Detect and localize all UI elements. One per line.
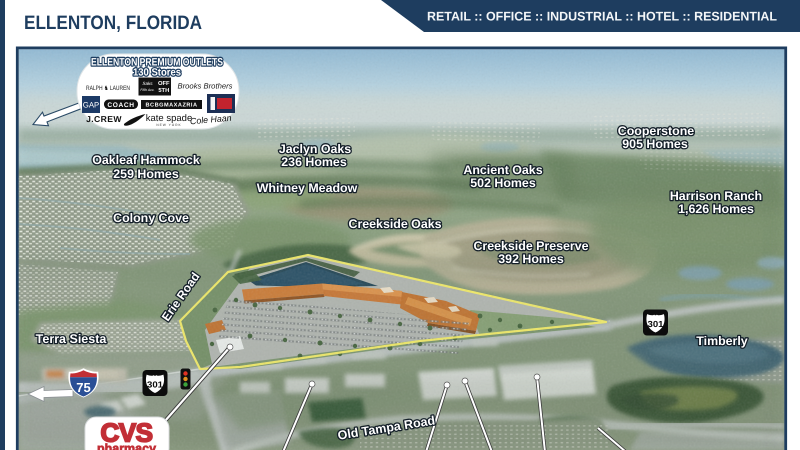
svg-text:236 Homes: 236 Homes — [281, 155, 347, 169]
svg-text:Saks: Saks — [142, 81, 153, 86]
svg-text:5TH: 5TH — [158, 88, 169, 94]
svg-text:GAP: GAP — [83, 101, 99, 110]
svg-text:1,626 Homes: 1,626 Homes — [678, 202, 754, 216]
svg-text:259 Homes: 259 Homes — [113, 167, 179, 181]
svg-text:pharmacy: pharmacy — [97, 442, 156, 450]
svg-text:Terra Siesta: Terra Siesta — [36, 332, 108, 346]
svg-text:Whitney Meadow: Whitney Meadow — [257, 181, 358, 195]
svg-text:BCBGMAXAZRIA: BCBGMAXAZRIA — [146, 103, 198, 109]
svg-text:502 Homes: 502 Homes — [470, 176, 536, 190]
svg-text:301: 301 — [147, 380, 163, 390]
svg-text:Colony Cove: Colony Cove — [113, 211, 189, 225]
svg-text:130 Stores: 130 Stores — [133, 68, 181, 79]
svg-text:Timberly: Timberly — [696, 334, 748, 348]
svg-text:301: 301 — [648, 319, 664, 329]
svg-text:NEW YORK: NEW YORK — [156, 123, 181, 127]
svg-text:RALPH ♞ LAUREN: RALPH ♞ LAUREN — [86, 85, 130, 92]
svg-text:RETAIL :: OFFICE :: INDUSTRIAL: RETAIL :: OFFICE :: INDUSTRIAL :: HOTEL … — [427, 10, 777, 24]
svg-text:OFF: OFF — [158, 80, 170, 87]
svg-text:Jaclyn Oaks: Jaclyn Oaks — [279, 142, 351, 156]
svg-text:Oakleaf Hammock: Oakleaf Hammock — [92, 153, 200, 167]
svg-text:905 Homes: 905 Homes — [622, 137, 688, 151]
svg-text:COACH: COACH — [107, 102, 134, 109]
svg-text:ELLENTON, FLORIDA: ELLENTON, FLORIDA — [24, 12, 202, 34]
svg-text:Cooperstone: Cooperstone — [618, 124, 695, 138]
svg-text:Ancient Oaks: Ancient Oaks — [463, 163, 542, 177]
svg-text:J.CREW: J.CREW — [86, 114, 122, 124]
svg-text:75: 75 — [76, 380, 90, 395]
svg-text:Creekside Preserve: Creekside Preserve — [473, 239, 588, 253]
svg-text:Creekside Oaks: Creekside Oaks — [349, 217, 442, 231]
svg-text:Harrison Ranch: Harrison Ranch — [670, 189, 762, 203]
svg-text:392 Homes: 392 Homes — [498, 252, 564, 266]
svg-text:Fifth Ave.: Fifth Ave. — [140, 88, 154, 92]
svg-text:Brooks Brothers: Brooks Brothers — [178, 82, 233, 91]
